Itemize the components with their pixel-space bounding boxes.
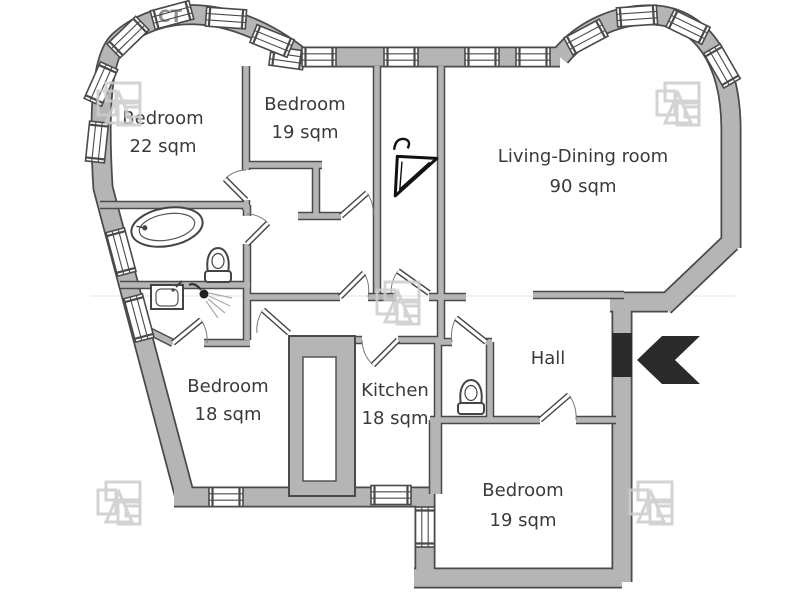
bathtub-icon — [128, 202, 206, 252]
toilet-icon — [458, 380, 484, 414]
door-icon — [247, 223, 268, 244]
floor-plan: Bedroom 22 sqm Bedroom 19 sqm Living-Din… — [0, 0, 800, 600]
door-swing — [362, 340, 373, 365]
room-area-bedroom-18: 18 sqm — [195, 404, 262, 425]
window-icon — [416, 507, 435, 547]
watermark-logo — [377, 282, 419, 324]
door-icon — [340, 273, 364, 297]
door-swing — [367, 193, 373, 216]
door-swing — [452, 318, 456, 342]
window-icon — [616, 5, 657, 27]
window-icon — [124, 294, 154, 342]
watermark-logo — [630, 482, 672, 524]
door-swing — [569, 395, 576, 420]
light-shaft — [289, 336, 355, 496]
entrance — [612, 333, 700, 384]
room-area-kitchen: 18 sqm — [362, 408, 429, 429]
door-icon — [263, 310, 289, 333]
window-icon — [465, 48, 499, 67]
room-label-living-dining: Living-Dining room — [498, 146, 668, 167]
door-swing — [364, 273, 369, 297]
door-icon — [456, 318, 486, 342]
room-label-bedroom-19-br: Bedroom — [482, 480, 563, 501]
window-icon — [516, 48, 550, 67]
entrance-arrow-icon — [637, 336, 700, 384]
room-area-bedroom-19-br: 19 sqm — [490, 510, 557, 531]
room-area-bedroom-22: 22 sqm — [130, 136, 197, 157]
shower-icon — [189, 284, 232, 318]
interior-walls — [100, 66, 624, 494]
window-icon — [205, 7, 246, 29]
door-swing — [225, 170, 246, 179]
window-icon — [302, 48, 336, 67]
watermark-logo — [98, 482, 140, 524]
door-icon — [540, 395, 569, 420]
room-label-bedroom-18: Bedroom — [187, 376, 268, 397]
room-area-living-dining: 90 sqm — [550, 176, 617, 197]
window-icon — [85, 121, 108, 163]
watermark-logo — [657, 83, 699, 125]
room-label-kitchen: Kitchen — [361, 380, 429, 401]
window-icon — [371, 486, 411, 505]
entrance-door — [612, 333, 632, 377]
sink-icon — [151, 281, 183, 309]
window-icon — [209, 488, 243, 507]
door-icon — [173, 320, 201, 343]
door-icon — [341, 193, 367, 216]
door-icon — [225, 179, 246, 200]
watermarks: СТ — [98, 7, 699, 524]
room-area-bedroom-19-top: 19 sqm — [272, 122, 339, 143]
floor-plan-image: Bedroom 22 sqm Bedroom 19 sqm Living-Din… — [0, 0, 800, 600]
door-swing — [257, 310, 263, 333]
watermark-text: СТ — [158, 7, 182, 27]
door-icon — [373, 340, 398, 365]
room-label-bedroom-19-top: Bedroom — [264, 94, 345, 115]
room-label-hall: Hall — [531, 348, 566, 369]
window-icon — [384, 48, 418, 67]
toilet-icon — [205, 248, 231, 282]
